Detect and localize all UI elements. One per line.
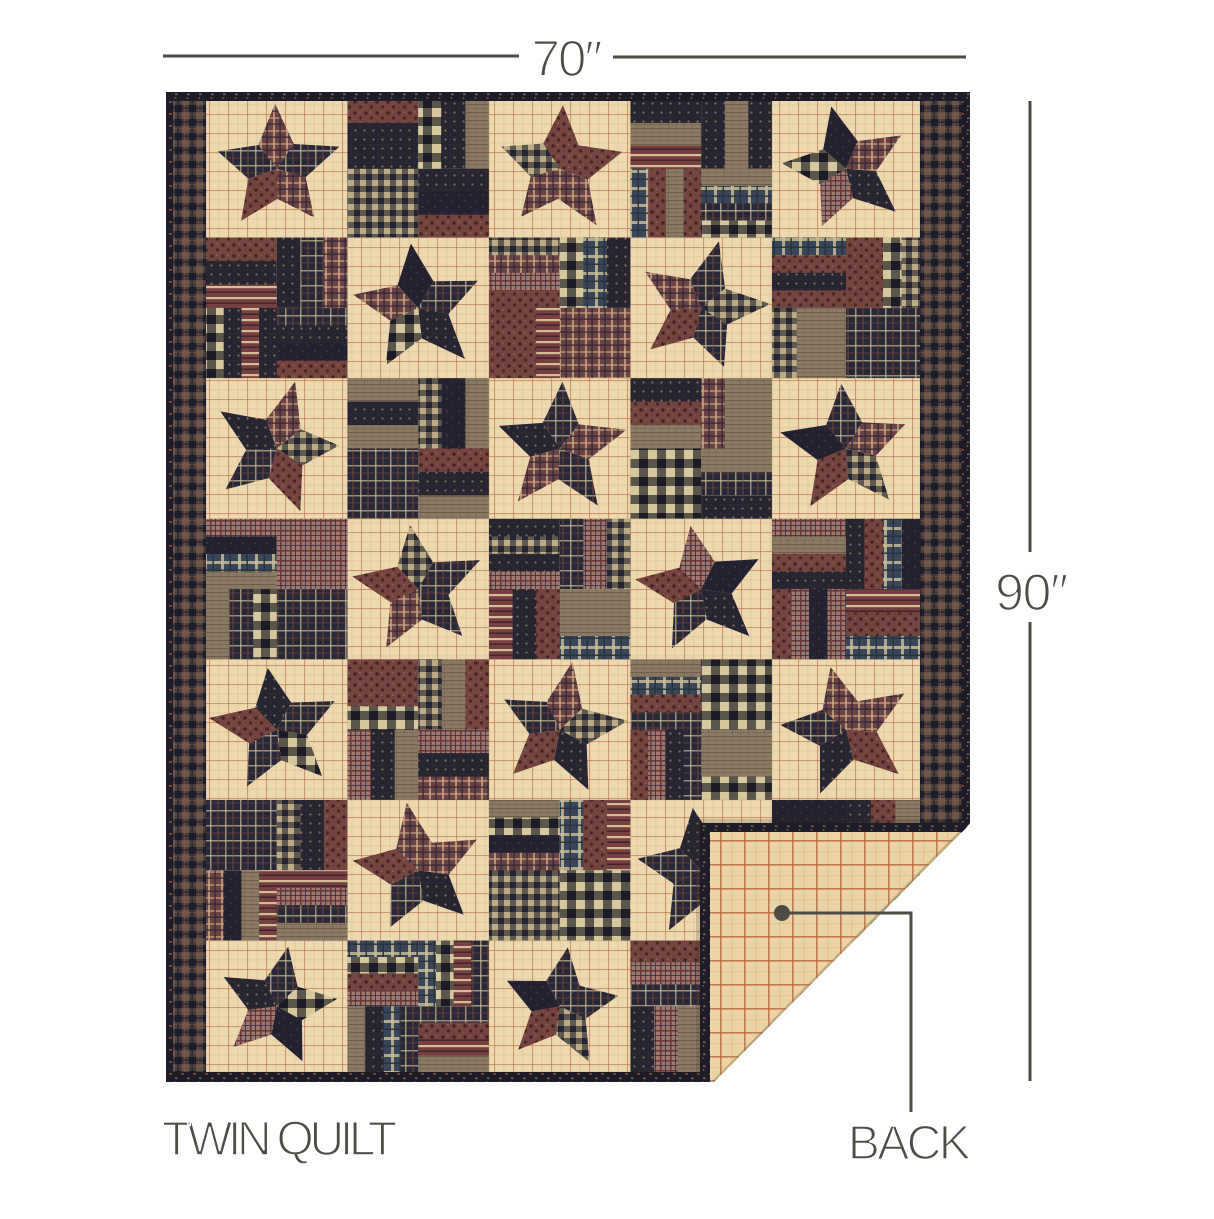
svg-text:90″: 90″ bbox=[995, 564, 1068, 622]
svg-text:70″: 70″ bbox=[532, 30, 603, 87]
svg-text:BACK: BACK bbox=[848, 1117, 971, 1170]
svg-text:TWIN QUILT: TWIN QUILT bbox=[162, 1113, 397, 1166]
